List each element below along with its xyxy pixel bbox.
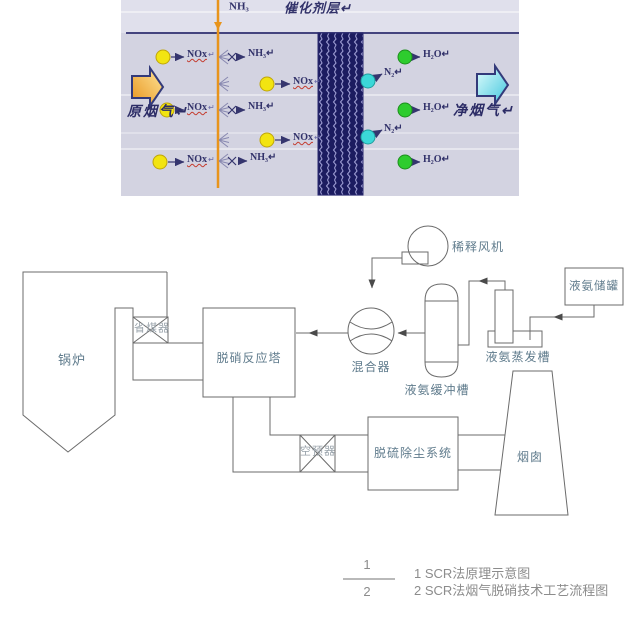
scr-principle-figure: NH₃ 催化剂层↵ 原烟气↵ 净烟气↵ NOx↵ NOx↵ NOx↵ NOx↵ … bbox=[121, 0, 519, 196]
boiler-outline bbox=[23, 272, 167, 452]
catalyst-block bbox=[318, 33, 363, 195]
ammonia-injection-label: NH₃ bbox=[229, 2, 249, 13]
ammonia-evaporator-shape bbox=[488, 290, 542, 347]
caption-figure-number-top: 1 bbox=[363, 558, 370, 571]
dilution-fan-symbol bbox=[402, 226, 448, 266]
air-preheater-label: 空预器 bbox=[300, 447, 336, 458]
nox-label: NOx↵ bbox=[187, 50, 215, 60]
reactor-to-preheater-duct bbox=[233, 397, 300, 472]
mixer-symbol bbox=[348, 308, 394, 354]
nh3-label: NH₃↵ bbox=[250, 153, 276, 163]
fan-to-mixer-pipe bbox=[372, 258, 402, 288]
scr-reactor-label: 脱硝反应塔 bbox=[216, 352, 281, 364]
nh3-label: NH₃↵ bbox=[248, 49, 274, 59]
nox-label: NOx↵ bbox=[187, 155, 215, 165]
clean-flue-gas-label: 净烟气↵ bbox=[453, 105, 515, 119]
boiler-label: 锅炉 bbox=[58, 354, 86, 367]
spray-nozzles bbox=[219, 50, 229, 168]
mixing-symbols bbox=[228, 53, 236, 165]
evaporator-to-buffer-pipe bbox=[458, 281, 505, 345]
h2o-label: H₂O↵ bbox=[423, 50, 450, 60]
boiler-to-reactor-duct bbox=[133, 343, 203, 380]
ammonia-buffer-tank-label: 液氨缓冲槽 bbox=[404, 384, 469, 396]
ammonia-storage-tank-label: 液氨储罐 bbox=[569, 281, 619, 293]
nox-label: NOx↵ bbox=[293, 77, 321, 87]
mixer-label: 混合器 bbox=[351, 361, 390, 373]
n2-label: N₂↵ bbox=[384, 124, 403, 134]
n2-label: N₂↵ bbox=[384, 68, 403, 78]
raw-flue-gas-arrow bbox=[132, 68, 163, 106]
stack-shape bbox=[495, 371, 568, 515]
fgd-to-stack-duct bbox=[458, 435, 505, 470]
storage-to-evaporator-pipe bbox=[530, 305, 594, 340]
dilution-fan-label: 稀释风机 bbox=[452, 241, 504, 253]
economizer-label: 省煤器 bbox=[134, 324, 170, 335]
h2o-label: H₂O↵ bbox=[423, 155, 450, 165]
caption-line-2: 2 SCR法烟气脱硝技术工艺流程图 bbox=[414, 584, 608, 597]
scr-principle-graphics bbox=[121, 0, 519, 196]
clean-flue-gas-arrow bbox=[477, 66, 508, 104]
catalyst-layer-label: 催化剂层↵ bbox=[284, 2, 352, 15]
nox-label: NOx↵ bbox=[187, 103, 215, 113]
ammonia-buffer-tank-shape bbox=[425, 284, 458, 377]
caption-figure-number-bottom: 2 bbox=[363, 585, 370, 598]
figure-page: NH₃ 催化剂层↵ 原烟气↵ 净烟气↵ NOx↵ NOx↵ NOx↵ NOx↵ … bbox=[0, 0, 639, 627]
stack-label: 烟囱 bbox=[517, 451, 543, 463]
h2o-label: H₂O↵ bbox=[423, 103, 450, 113]
ammonia-evaporator-label: 液氨蒸发槽 bbox=[485, 351, 550, 363]
nh3-label: NH₃↵ bbox=[248, 102, 274, 112]
fgd-system-label: 脱硫除尘系统 bbox=[374, 447, 452, 459]
raw-flue-gas-label: 原烟气↵ bbox=[127, 106, 189, 120]
preheater-to-fgd-duct bbox=[335, 435, 368, 472]
nox-label: NOx↵ bbox=[293, 133, 321, 143]
caption-line-1: 1 SCR法原理示意图 bbox=[414, 567, 530, 580]
